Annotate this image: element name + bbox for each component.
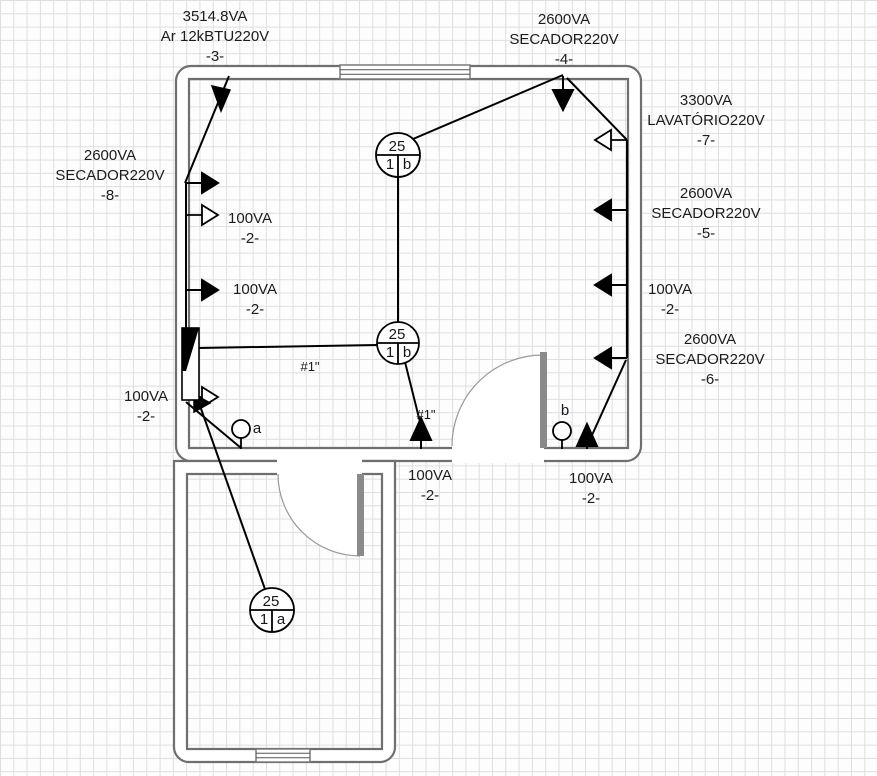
circuit-name: SECADOR220V (651, 204, 760, 224)
door-leaf-main (540, 352, 547, 448)
circuit-num: -6- (655, 370, 764, 390)
circuit-num: -2- (569, 489, 613, 509)
label-circuit-2-bottom-2: 100VA -2- (569, 469, 613, 509)
circuit-num: -2- (233, 300, 277, 320)
switch-a[interactable] (232, 420, 250, 449)
wall-main-room (176, 66, 641, 461)
circuit-va: 100VA (233, 280, 277, 300)
circuit-va: 100VA (124, 387, 168, 407)
light-1-power: 25 (389, 139, 406, 155)
outlet-arrow-100va-right[interactable] (595, 275, 627, 295)
label-circuit-7: 3300VA LAVATÓRIO220V -7- (647, 91, 765, 151)
label-circuit-3: 3514.8VA Ar 12kBTU220V -3- (161, 7, 269, 67)
outlet-arrow-circuit8[interactable] (186, 173, 218, 193)
circuit-va: 3300VA (647, 91, 765, 111)
circuit-name: LAVATÓRIO220V (647, 111, 765, 131)
light-1-qty: 1 (386, 157, 394, 173)
circuit-num: -5- (651, 224, 760, 244)
distribution-panel[interactable] (182, 328, 199, 400)
light-2-qty: 1 (386, 345, 394, 361)
light-1-switch-ref: b (403, 157, 411, 173)
label-circuit-2-bottom-1: 100VA -2- (408, 466, 452, 506)
circuit-va: 100VA (569, 469, 613, 489)
outlet-arrow-100va-bottom-2[interactable] (577, 424, 597, 449)
circuit-num: -2- (408, 486, 452, 506)
window-top (340, 65, 470, 79)
circuit-num: -3- (161, 47, 269, 67)
light-3-qty: 1 (260, 612, 268, 628)
outlet-arrow-circuit3[interactable] (212, 86, 230, 111)
switch-a-label: a (253, 421, 261, 437)
light-3-power: 25 (263, 594, 280, 610)
door-main (452, 352, 547, 448)
window-bottom (256, 749, 310, 762)
circuit-va: 3514.8VA (161, 7, 269, 27)
light-2-switch-ref: b (403, 345, 411, 361)
light-2-power: 25 (389, 327, 406, 343)
circuit-va: 2600VA (55, 146, 164, 166)
label-circuit-5: 2600VA SECADOR220V -5- (651, 184, 760, 244)
circuit-num: -2- (124, 407, 168, 427)
circuit-name: SECADOR220V (509, 30, 618, 50)
wire-gauge-label-2: #1" (416, 407, 435, 423)
wire-gauge-label-1: #1" (300, 359, 319, 375)
label-circuit-2-right: 100VA -2- (648, 280, 692, 320)
outlet-arrow-circuit7[interactable] (595, 130, 627, 150)
label-circuit-8: 2600VA SECADOR220V -8- (55, 146, 164, 206)
circuit-va: 100VA (648, 280, 692, 300)
label-circuit-2-left-1: 100VA -2- (228, 209, 272, 249)
switch-b[interactable] (553, 422, 571, 449)
circuit-name: Ar 12kBTU220V (161, 27, 269, 47)
switch-b-label: b (561, 403, 569, 419)
outlet-arrow-100va-left-2[interactable] (186, 280, 218, 300)
circuit-va: 100VA (228, 209, 272, 229)
label-circuit-6: 2600VA SECADOR220V -6- (655, 330, 764, 390)
label-circuit-2-left-3: 100VA -2- (124, 387, 168, 427)
outlet-arrow-circuit6[interactable] (595, 348, 627, 368)
circuit-num: -2- (648, 300, 692, 320)
circuit-num: -2- (228, 229, 272, 249)
outlet-arrow-circuit5[interactable] (595, 200, 627, 220)
circuit-name: SECADOR220V (55, 166, 164, 186)
circuit-name: SECADOR220V (655, 350, 764, 370)
door-lower (278, 474, 364, 556)
circuit-va: 2600VA (651, 184, 760, 204)
circuit-va: 2600VA (655, 330, 764, 350)
door-leaf-lower (357, 474, 364, 556)
label-circuit-4: 2600VA SECADOR220V -4- (509, 10, 618, 70)
outlet-arrow-100va-left-1[interactable] (186, 205, 218, 225)
light-3-switch-ref: a (277, 612, 285, 628)
label-circuit-2-left-2: 100VA -2- (233, 280, 277, 320)
circuit-va: 100VA (408, 466, 452, 486)
diagram-canvas: 3514.8VA Ar 12kBTU220V -3- 2600VA SECADO… (0, 0, 877, 776)
circuit-va: 2600VA (509, 10, 618, 30)
circuit-num: -7- (647, 131, 765, 151)
circuit-num: -8- (55, 186, 164, 206)
circuit-num: -4- (509, 50, 618, 70)
